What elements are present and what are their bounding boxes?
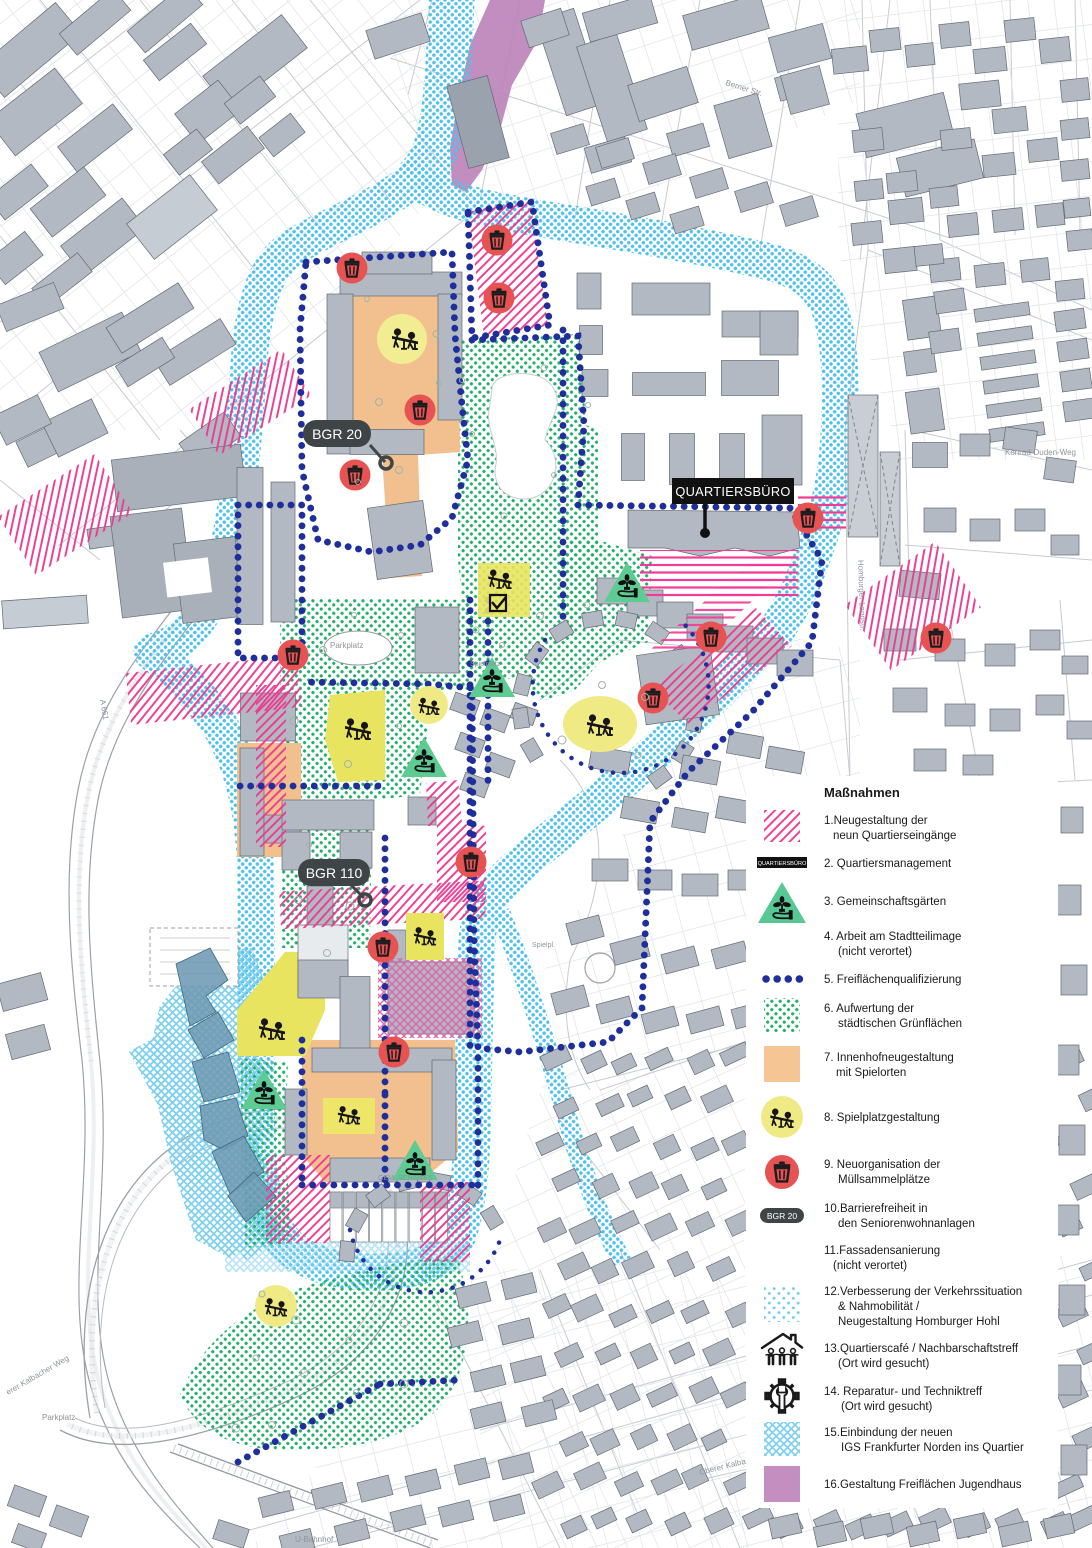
svg-text:4. Arbeit am Stadtteilimage: 4. Arbeit am Stadtteilimage	[824, 931, 961, 943]
svg-text:U-Bahnhof: U-Bahnhof	[295, 1535, 334, 1544]
svg-text:Spielpl.: Spielpl.	[532, 942, 555, 949]
svg-text:3. Gemeinschaftsgärten: 3. Gemeinschaftsgärten	[824, 896, 946, 908]
svg-text:6. Aufwertung der: 6. Aufwertung der	[824, 1003, 914, 1015]
svg-text:städtischen Grünflächen: städtischen Grünflächen	[838, 1018, 962, 1030]
svg-text:11.Fassadensanierung: 11.Fassadensanierung	[824, 1245, 940, 1257]
svg-text:13.Quartierscafé / Nachbarscha: 13.Quartierscafé / Nachbarschaftstreff	[824, 1343, 1019, 1355]
svg-text:9. Neuorganisation der: 9. Neuorganisation der	[824, 1159, 941, 1171]
svg-text:2. Quartiersmanagement: 2. Quartiersmanagement	[824, 858, 952, 870]
svg-text:GEM. SCHAWES: GEM. SCHAWES	[378, 1175, 433, 1182]
svg-text:(Ort wird gesucht): (Ort wird gesucht)	[841, 1401, 933, 1413]
svg-text:QUARTIERSBÜRO: QUARTIERSBÜRO	[675, 484, 790, 499]
svg-text:Neugestaltung Homburger Hohl: Neugestaltung Homburger Hohl	[838, 1316, 1000, 1328]
svg-text:5. Freiflächenqualifizierung: 5. Freiflächenqualifizierung	[824, 974, 961, 986]
svg-text:BGR 20: BGR 20	[312, 426, 362, 442]
svg-text:neun Quartierseingänge: neun Quartierseingänge	[833, 830, 956, 842]
svg-text:10.Barrierefreiheit in: 10.Barrierefreiheit in	[824, 1203, 928, 1215]
svg-text:Maßnahmen: Maßnahmen	[824, 785, 900, 800]
svg-text:IGS Frankfurter Norden ins Qua: IGS Frankfurter Norden ins Quartier	[841, 1442, 1024, 1454]
svg-text:Konrad-Duden-Weg: Konrad-Duden-Weg	[1005, 448, 1076, 457]
svg-text:BGR 110: BGR 110	[306, 865, 363, 881]
svg-text:15.Einbindung der neuen: 15.Einbindung der neuen	[824, 1427, 953, 1439]
svg-text:14. Reparatur- und Techniktref: 14. Reparatur- und Techniktreff	[824, 1386, 983, 1398]
svg-text:12.Verbesserung der Verkehrssi: 12.Verbesserung der Verkehrssituation	[824, 1286, 1022, 1298]
svg-text:Spielplatz: Spielplatz	[470, 661, 501, 668]
svg-text:1.Neugestaltung der: 1.Neugestaltung der	[824, 815, 928, 827]
svg-text:BGR 20: BGR 20	[767, 1211, 798, 1221]
svg-text:& Nahmobilität /: & Nahmobilität /	[838, 1301, 920, 1313]
svg-text:7. Innenhofneugestaltung: 7. Innenhofneugestaltung	[824, 1052, 954, 1064]
svg-text:16.Gestaltung Freiflächen Juge: 16.Gestaltung Freiflächen Jugendhaus	[824, 1479, 1022, 1491]
svg-text:den Seniorenwohnanlagen: den Seniorenwohnanlagen	[838, 1218, 975, 1230]
svg-text:(nicht verortet): (nicht verortet)	[838, 946, 912, 958]
svg-text:QUARTIERSBÜRO: QUARTIERSBÜRO	[758, 860, 807, 867]
svg-text:mit Spielorten: mit Spielorten	[836, 1067, 906, 1079]
svg-text:Parkplatz: Parkplatz	[330, 641, 363, 650]
svg-text:8. Spielplatzgestaltung: 8. Spielplatzgestaltung	[824, 1112, 940, 1124]
svg-text:(nicht verortet): (nicht verortet)	[833, 1260, 907, 1272]
svg-text:(Ort wird gesucht): (Ort wird gesucht)	[838, 1358, 930, 1370]
svg-text:Müllsammelplätze: Müllsammelplätze	[838, 1174, 930, 1186]
svg-text:Parkplatz: Parkplatz	[42, 1413, 75, 1422]
